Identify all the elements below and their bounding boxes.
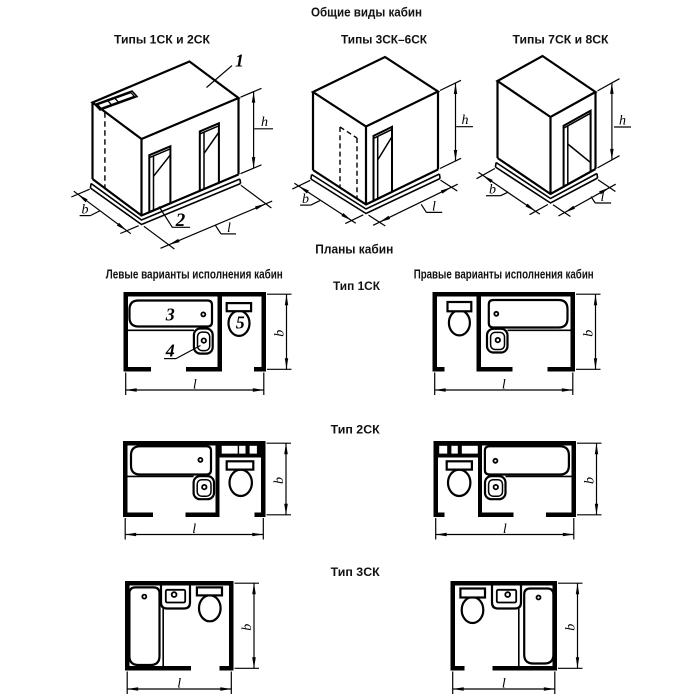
svg-text:Типы 1СК и 2СК: Типы 1СК и 2СК: [114, 32, 211, 46]
svg-text:b: b: [563, 624, 578, 631]
svg-text:4: 4: [165, 340, 175, 360]
svg-text:b: b: [240, 624, 255, 631]
svg-text:Левые варианты исполнения каби: Левые варианты исполнения кабин: [106, 267, 283, 282]
svg-text:b: b: [272, 477, 287, 484]
svg-text:l: l: [502, 378, 506, 393]
svg-text:Общие виды кабин: Общие виды кабин: [311, 5, 422, 20]
svg-text:b: b: [582, 477, 597, 484]
svg-text:2: 2: [175, 210, 186, 231]
svg-text:l: l: [503, 522, 507, 537]
svg-text:l: l: [177, 677, 181, 692]
svg-text:b: b: [581, 330, 596, 337]
svg-text:Тип 3СК: Тип 3СК: [331, 565, 381, 579]
svg-text:h: h: [462, 113, 469, 128]
svg-text:1: 1: [235, 50, 244, 70]
svg-text:Тип 1СК: Тип 1СК: [333, 279, 381, 293]
svg-text:l: l: [192, 522, 196, 537]
svg-text:Типы 7СК и 8СК: Типы 7СК и 8СК: [513, 32, 610, 46]
svg-text:l: l: [193, 378, 197, 393]
svg-text:h: h: [619, 114, 626, 129]
svg-text:Типы 3СК–6СК: Типы 3СК–6СК: [341, 32, 428, 46]
svg-text:3: 3: [165, 304, 175, 324]
svg-text:l: l: [502, 677, 506, 692]
svg-text:b: b: [272, 330, 287, 337]
svg-text:h: h: [261, 115, 268, 130]
svg-text:Правые варианты исполнения каб: Правые варианты исполнения кабин: [414, 267, 594, 282]
svg-text:5: 5: [236, 313, 245, 333]
svg-text:Тип 2СК: Тип 2СК: [331, 423, 381, 437]
svg-text:Планы кабин: Планы кабин: [315, 241, 393, 256]
